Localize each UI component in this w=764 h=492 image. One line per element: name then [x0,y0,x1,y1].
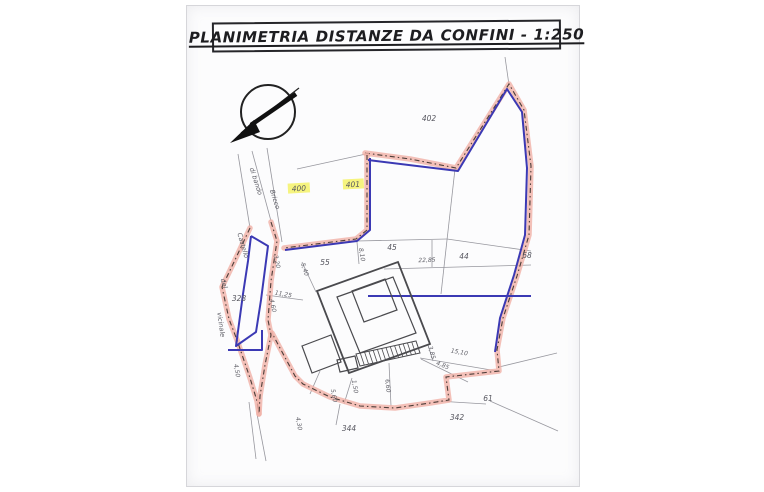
building-outline [352,279,397,322]
stairs-hatch [360,353,364,365]
dimension-label: 3,85 [426,345,436,360]
parcel-line [447,239,531,251]
boundary-pink-dashes [284,155,367,248]
parcel-line [499,353,557,367]
stairs-hatch [369,351,373,363]
site-plan-map: 400401402454468553283443426122,8515,104,… [0,0,764,492]
parcel-label: 45 [387,243,397,252]
dimension-label: 15,10 [450,348,468,358]
parcel-label: 328 [232,294,247,303]
stairs-hatch [373,350,377,362]
road-name-label: Bricco [268,189,282,211]
dimension-label: 5,40 [299,262,310,277]
stairs-hatch [365,352,369,364]
parcel-label: 402 [422,114,437,123]
road-name-label: di bando [248,167,264,196]
building-outline [317,262,430,373]
parcel-label: 61 [483,394,493,403]
parcel-label: 342 [450,413,465,422]
stairs-hatch [382,348,386,360]
stairs-hatch [386,348,390,360]
parcel-line [384,265,531,269]
building-outline [302,335,341,373]
dimension-label: 22,85 [418,257,436,265]
parcel-label-highlighted: 401 [345,180,360,190]
dimension-label: 5,60 [329,389,338,404]
parcel-line [447,169,455,240]
stairs-hatch [377,349,381,361]
parcel-line [238,154,250,228]
boundary-pink-band [284,155,367,248]
parcel-label: 55 [320,258,330,267]
dimension-label: 11,25 [274,290,292,300]
road-name-label: vicinale [215,312,226,338]
parcel-label-highlighted: 400 [291,184,306,194]
parcel-line [257,414,266,461]
dimension-label: 4,30 [294,417,303,432]
building-outline [337,277,416,353]
stairs-hatch [412,342,416,354]
parcel-label: 68 [522,251,532,260]
dimension-label: 4,50 [232,364,241,379]
boundary-pink-band [222,228,259,414]
parcel-line [505,57,509,85]
dimension-label: 6,60 [383,379,391,393]
parcel-line [297,154,366,169]
parcel-label: 344 [342,424,357,433]
parcel-line [336,404,340,425]
parcel-line [249,402,256,459]
parcel-line [357,239,447,241]
dimension-label: 1,50 [350,380,359,395]
north-arrow-icon [230,85,299,143]
stairs-hatch [407,343,411,355]
parcel-label: 44 [459,252,469,261]
page-background: PLANIMETRIA DISTANZE DA CONFINI - 1:250 … [0,0,764,492]
parcel-line [490,401,558,431]
